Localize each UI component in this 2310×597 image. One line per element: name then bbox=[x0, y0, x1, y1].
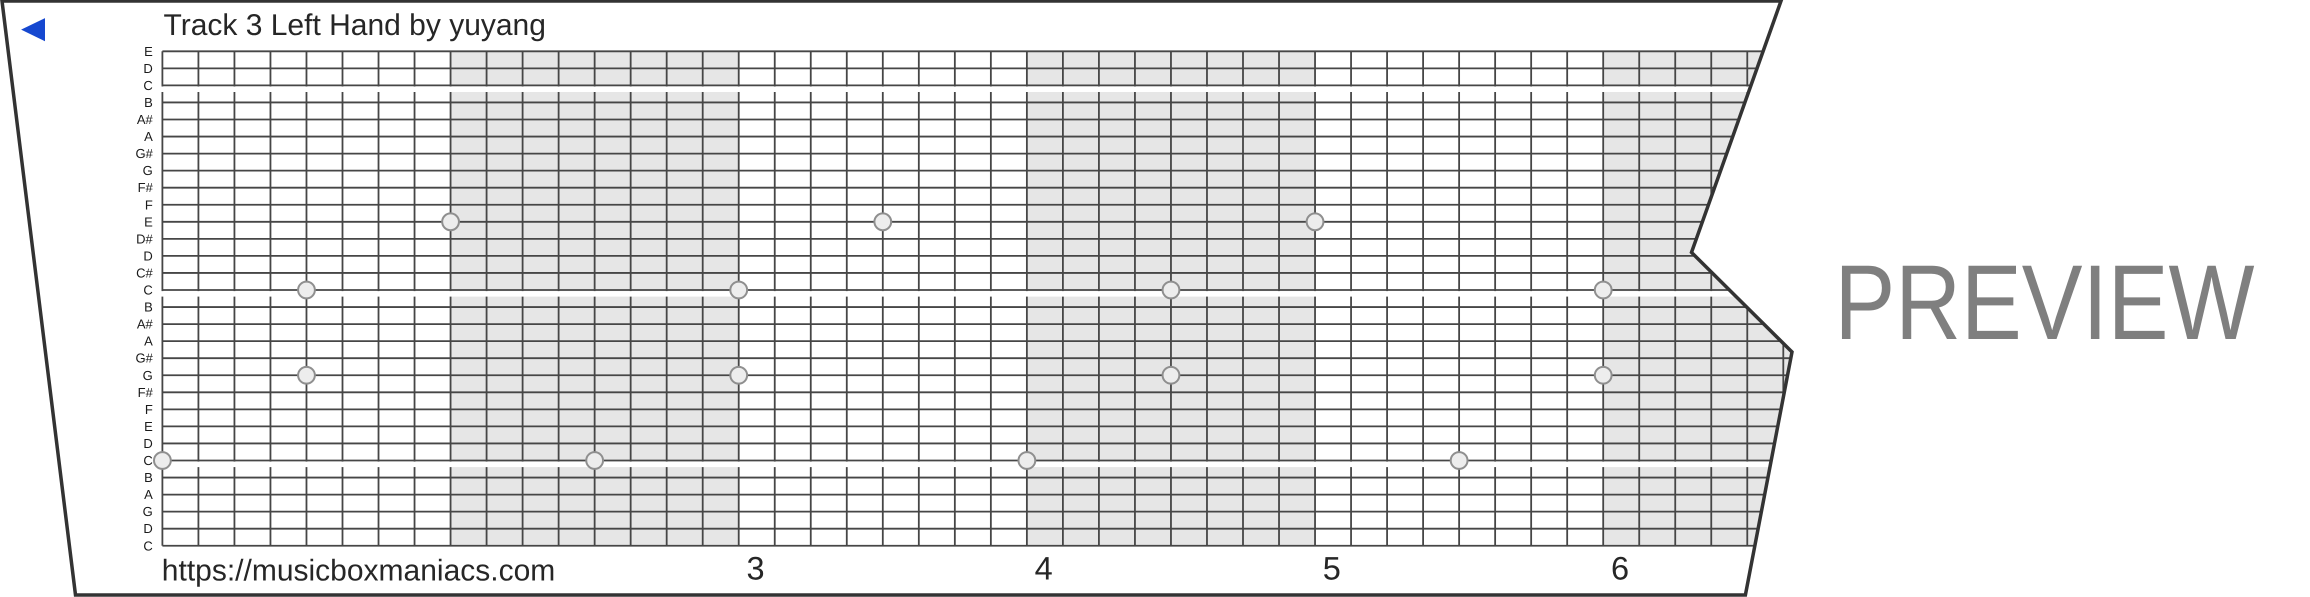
svg-text:D: D bbox=[143, 248, 152, 263]
svg-text:B: B bbox=[144, 300, 153, 315]
svg-text:5: 5 bbox=[1323, 551, 1341, 587]
svg-text:C: C bbox=[143, 78, 152, 93]
svg-text:D: D bbox=[143, 436, 152, 451]
svg-text:B: B bbox=[144, 470, 153, 485]
svg-text:G#: G# bbox=[135, 146, 153, 161]
svg-text:6: 6 bbox=[1611, 551, 1629, 587]
svg-text:E: E bbox=[144, 214, 153, 229]
svg-text:4: 4 bbox=[1035, 551, 1053, 587]
svg-text:D#: D# bbox=[136, 231, 153, 246]
svg-text:A: A bbox=[144, 487, 153, 502]
svg-text:C#: C# bbox=[136, 265, 153, 280]
svg-text:A: A bbox=[144, 334, 153, 349]
svg-text:3: 3 bbox=[746, 551, 764, 587]
svg-text:F#: F# bbox=[138, 385, 154, 400]
svg-text:PREVIEW: PREVIEW bbox=[1835, 243, 2255, 362]
svg-text:G: G bbox=[143, 163, 153, 178]
svg-text:G: G bbox=[143, 504, 153, 519]
svg-text:A#: A# bbox=[137, 112, 154, 127]
svg-text:E: E bbox=[144, 419, 153, 434]
svg-text:G#: G# bbox=[135, 351, 153, 366]
svg-text:D: D bbox=[143, 521, 152, 536]
svg-text:A#: A# bbox=[137, 317, 154, 332]
svg-text:E: E bbox=[144, 44, 153, 59]
svg-text:https://musicboxmaniacs.com: https://musicboxmaniacs.com bbox=[162, 555, 555, 588]
svg-text:A: A bbox=[144, 129, 153, 144]
svg-text:F: F bbox=[145, 402, 153, 417]
svg-text:F: F bbox=[145, 197, 153, 212]
svg-text:C: C bbox=[143, 453, 152, 468]
svg-text:Track 3 Left Hand by yuyang: Track 3 Left Hand by yuyang bbox=[164, 9, 546, 42]
svg-text:B: B bbox=[144, 95, 153, 110]
svg-text:D: D bbox=[143, 61, 152, 76]
svg-text:C: C bbox=[143, 538, 152, 553]
svg-text:G: G bbox=[143, 368, 153, 383]
svg-text:C: C bbox=[143, 283, 152, 298]
svg-text:F#: F# bbox=[138, 180, 154, 195]
